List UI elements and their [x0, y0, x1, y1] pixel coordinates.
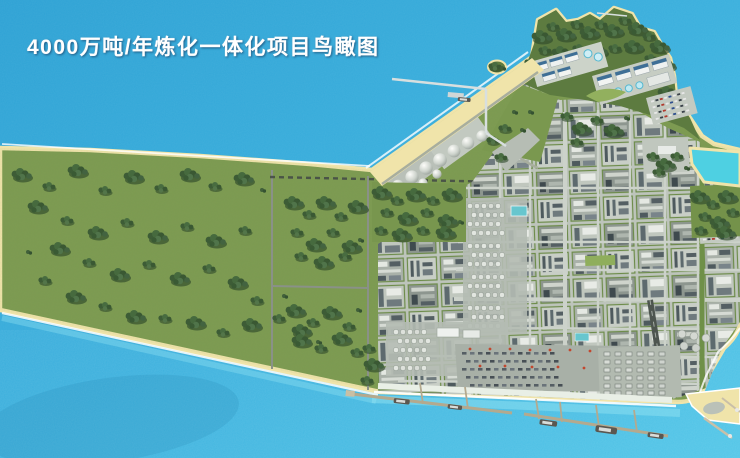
boat — [735, 408, 739, 412]
east-parcels — [690, 184, 740, 240]
boat — [728, 434, 732, 438]
small-island — [488, 61, 506, 74]
pier-head — [345, 390, 355, 397]
round-tank-farm-west — [463, 198, 527, 334]
warehouse — [437, 328, 459, 337]
aerial-rendering: 4000万吨/年炼化一体化项目鸟瞰图 — [0, 0, 740, 458]
teal-roof-unit — [511, 206, 527, 216]
warehouse — [463, 330, 480, 338]
teal-roof-unit — [575, 333, 589, 341]
project-title: 4000万吨/年炼化一体化项目鸟瞰图 — [27, 31, 380, 61]
lawn-strip — [585, 255, 615, 266]
scene-svg — [0, 0, 740, 458]
